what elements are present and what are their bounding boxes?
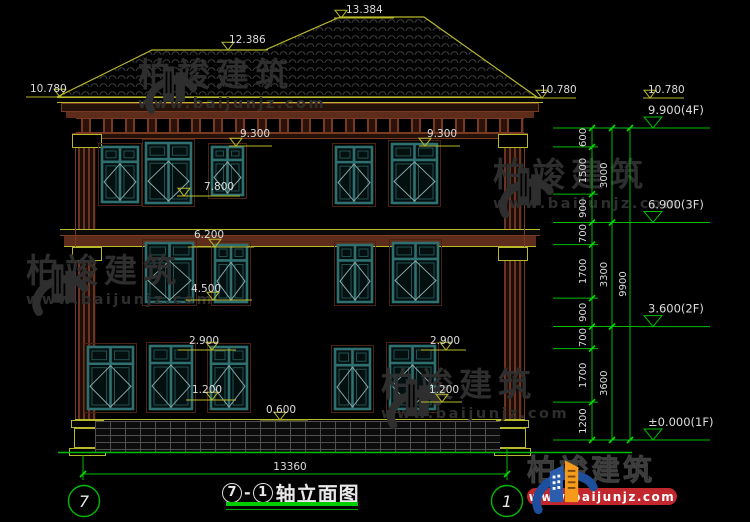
elevation-flag: 0.600 (260, 404, 308, 420)
dim-text: 9.300 (427, 128, 457, 140)
cad-elevation-drawing: 柏竣建筑 www.baijunjz.com 柏竣建筑 www.baijunjz.… (0, 0, 750, 522)
dim-text: 3600 (599, 371, 610, 396)
dim-text: 0.600 (266, 404, 296, 416)
title-underline-thin (226, 509, 358, 510)
dim-text: 6.200 (194, 229, 224, 241)
dim-text: 9900 (618, 271, 629, 296)
dim-text: 700 (578, 224, 589, 243)
floor-level-marker: 9.900(4F) (636, 103, 710, 128)
dim-text: 600 (578, 128, 589, 147)
dim-text: 1700 (578, 363, 589, 388)
elevation-flag: 7.800 (177, 181, 240, 196)
elevation-flag: 1.200 (421, 384, 462, 402)
dim-text: ±0.000(1F) (648, 415, 713, 429)
title-axis-bubble-start: 7 (222, 483, 242, 503)
dim-text: 1500 (578, 158, 589, 183)
elevation-flag: 10.780 (26, 83, 68, 97)
dim-text: 3000 (599, 163, 610, 188)
title-underline (226, 502, 358, 506)
dim-text: 9.300 (240, 128, 270, 140)
dim-text: 900 (578, 303, 589, 322)
svg-text:1: 1 (502, 492, 512, 511)
brand-logo-icon (527, 454, 601, 520)
elevation-flag: 9.300 (229, 128, 272, 146)
dim-text: 2.900 (189, 335, 219, 347)
dim-text: 7.800 (204, 181, 234, 193)
floor-level-marker: 3.600(2F) (636, 302, 710, 327)
dim-text: 13.384 (346, 4, 383, 16)
elevation-flag: 4.500 (186, 283, 252, 300)
dimension-annotations: 13.38412.38610.78010.78010.7809.3009.300… (0, 0, 750, 522)
title-axis-bubble-end: 1 (253, 483, 273, 503)
dim-text: 9.900(4F) (648, 103, 704, 117)
dim-text: 12.386 (229, 34, 266, 46)
dim-text: 10.780 (30, 83, 67, 95)
dim-text: 1700 (578, 259, 589, 284)
dim-text: 1200 (578, 408, 589, 433)
elevation-flag: 12.386 (221, 34, 268, 50)
axis-bubble: 1 (492, 486, 523, 517)
elevation-flag: 2.900 (421, 335, 466, 350)
dim-text: 700 (578, 328, 589, 347)
elevation-flag: 1.200 (186, 384, 236, 400)
elevation-flag: 2.900 (178, 335, 236, 350)
floor-level-marker: ±0.000(1F) (636, 415, 713, 440)
dim-text: 1.200 (429, 384, 459, 396)
brand-logo: 柏竣建筑 www.baijunjz.com (527, 454, 677, 505)
dim-text: 10.780 (540, 84, 577, 96)
elevation-flag: 10.780 (643, 84, 685, 98)
dim-text: 3300 (599, 262, 610, 287)
dim-text: 3.600(2F) (648, 302, 704, 316)
axis-bubble: 7 (69, 486, 100, 517)
title-dash: - (244, 483, 251, 502)
elevation-flag: 6.200 (188, 229, 254, 247)
floor-level-marker: 6.900(3F) (636, 198, 710, 223)
dim-text: 13360 (273, 461, 306, 473)
elevation-flag: 13.384 (334, 4, 394, 18)
dim-text: 4.500 (191, 283, 221, 295)
dim-text: 10.780 (648, 84, 685, 96)
dim-text: 1.200 (192, 384, 222, 396)
elevation-flag: 9.300 (419, 128, 460, 146)
dim-text: 6.900(3F) (648, 198, 704, 212)
dim-text: 900 (578, 199, 589, 218)
dim-text: 2.900 (430, 335, 460, 347)
elevation-flag: 10.780 (535, 84, 577, 98)
svg-text:7: 7 (79, 492, 90, 511)
